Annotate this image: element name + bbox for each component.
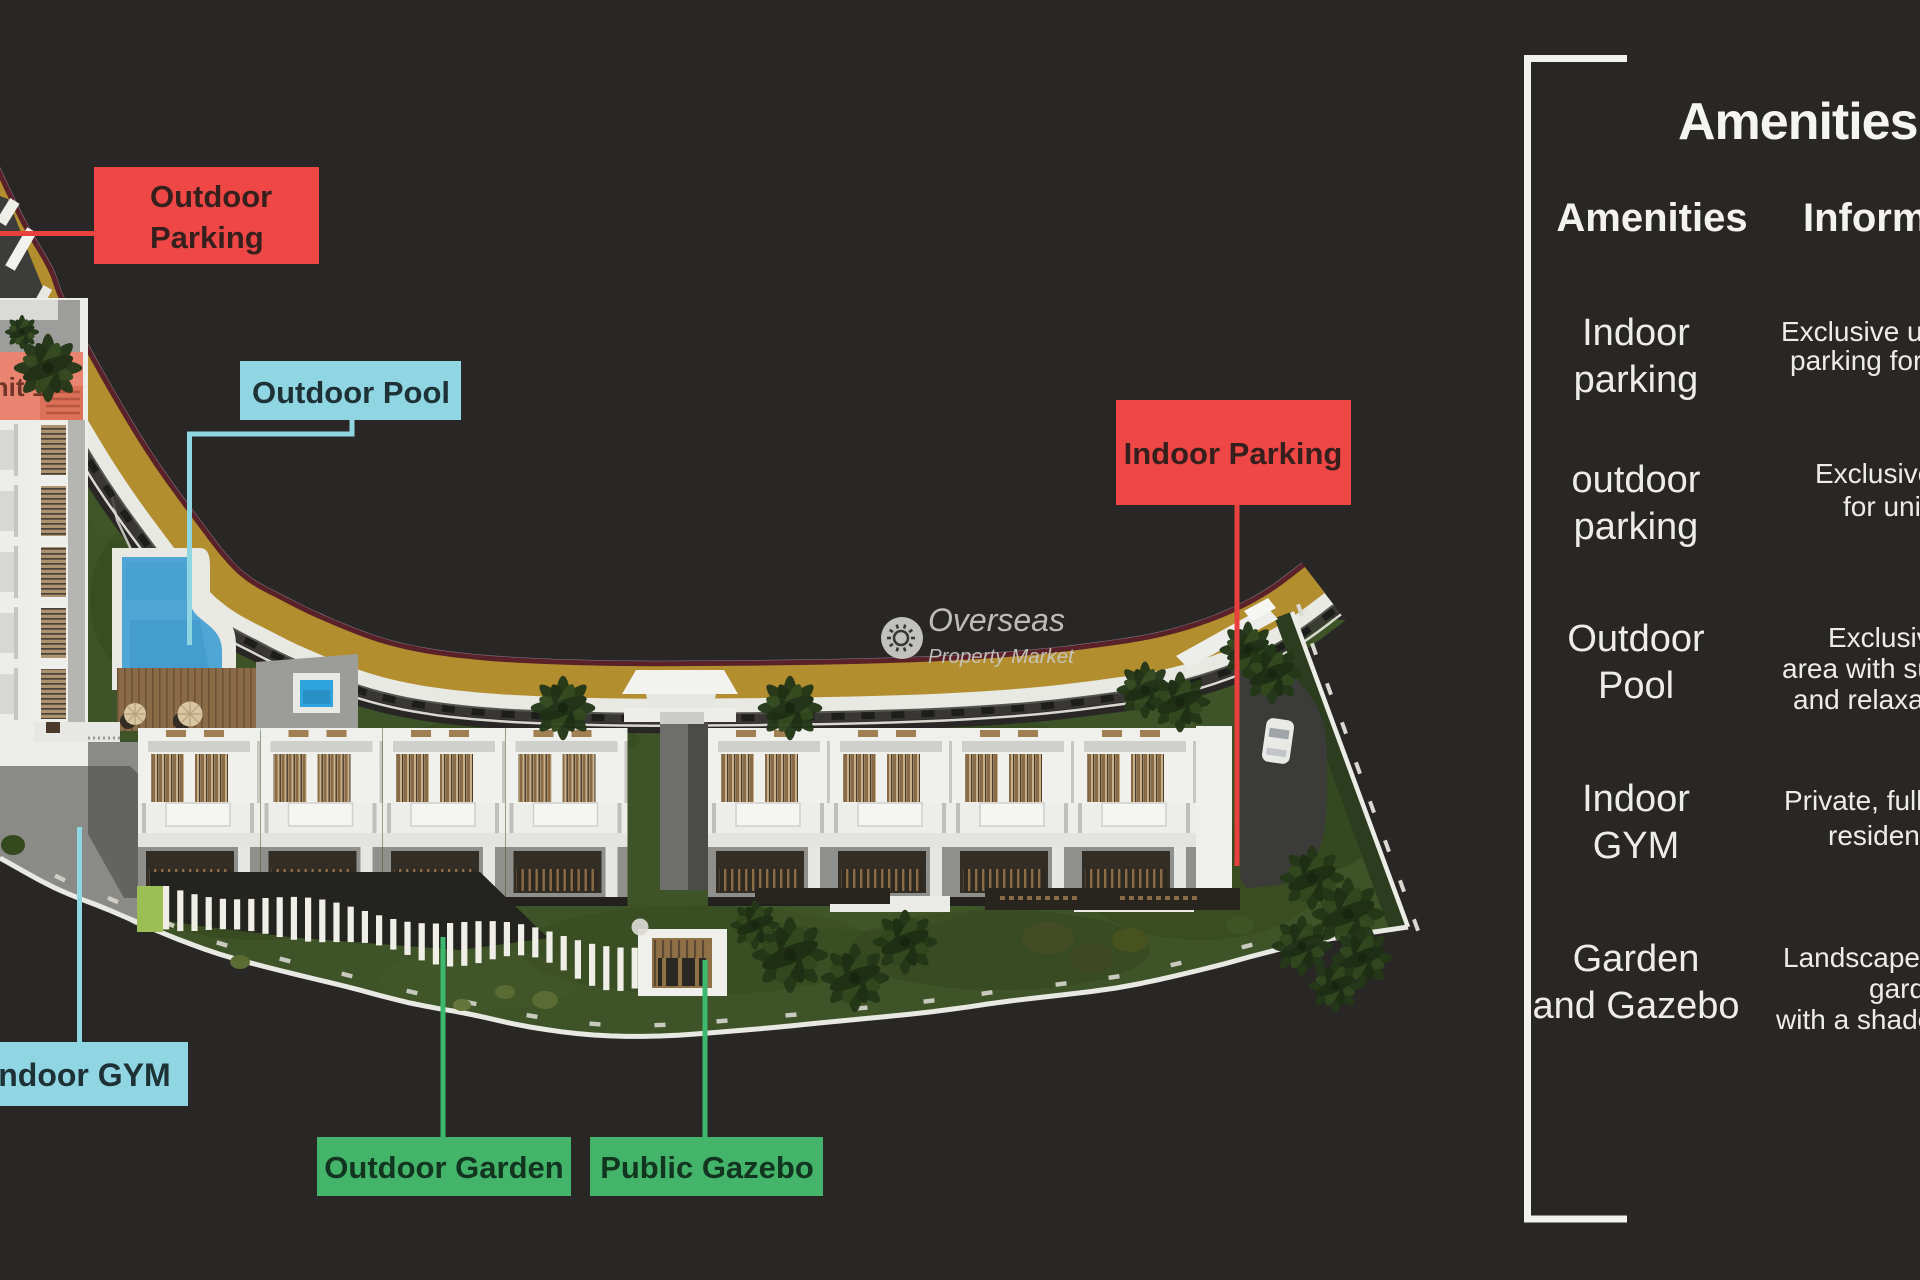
svg-text:Outdoor: Outdoor	[1567, 618, 1705, 660]
svg-text:Exclusive parking: Exclusive parking	[1815, 458, 1920, 489]
svg-text:Outdoor Garden: Outdoor Garden	[324, 1150, 563, 1185]
svg-text:Outdoor Pool: Outdoor Pool	[252, 375, 450, 410]
svg-text:Property Market: Property Market	[928, 645, 1075, 668]
svg-text:Information: Information	[1803, 196, 1920, 240]
svg-text:parking: parking	[1574, 506, 1699, 548]
svg-text:Indoor: Indoor	[1582, 312, 1690, 354]
svg-text:Private, fully equipped: Private, fully equipped	[1784, 785, 1920, 816]
svg-text:Indoor GYM: Indoor GYM	[0, 1057, 171, 1093]
svg-text:Amenities: Amenities	[1678, 93, 1918, 151]
svg-text:with a shaded gazebo: with a shaded gazebo	[1775, 1004, 1920, 1035]
svg-text:Pool: Pool	[1598, 665, 1674, 707]
svg-text:Outdoor: Outdoor	[150, 179, 272, 214]
svg-text:Overseas: Overseas	[928, 602, 1065, 638]
svg-text:parking for 1 car: parking for 1 car	[1790, 345, 1920, 376]
svg-text:Exclusive pool: Exclusive pool	[1828, 622, 1920, 653]
svg-text:and relaxation zones: and relaxation zones	[1793, 684, 1920, 715]
svg-text:outdoor: outdoor	[1572, 459, 1701, 501]
svg-text:and Gazebo: and Gazebo	[1532, 985, 1739, 1027]
svg-text:for units 1-4: for units 1-4	[1843, 491, 1920, 522]
svg-text:residents' GYM: residents' GYM	[1828, 820, 1920, 851]
svg-text:parking: parking	[1574, 359, 1699, 401]
svg-text:Indoor Parking: Indoor Parking	[1124, 436, 1343, 471]
svg-text:Public Gazebo: Public Gazebo	[600, 1150, 814, 1185]
svg-text:GYM: GYM	[1593, 825, 1680, 867]
svg-text:Garden: Garden	[1573, 938, 1700, 980]
svg-text:Parking: Parking	[150, 220, 264, 255]
svg-text:area with sun loungers: area with sun loungers	[1782, 653, 1920, 684]
svg-text:Exclusive underground: Exclusive underground	[1781, 316, 1920, 347]
svg-text:Amenities: Amenities	[1556, 196, 1747, 240]
svg-text:gardens and lawn: gardens and lawn	[1869, 973, 1920, 1004]
svg-text:Landscaped green: Landscaped green	[1783, 942, 1920, 973]
svg-text:Indoor: Indoor	[1582, 778, 1690, 820]
